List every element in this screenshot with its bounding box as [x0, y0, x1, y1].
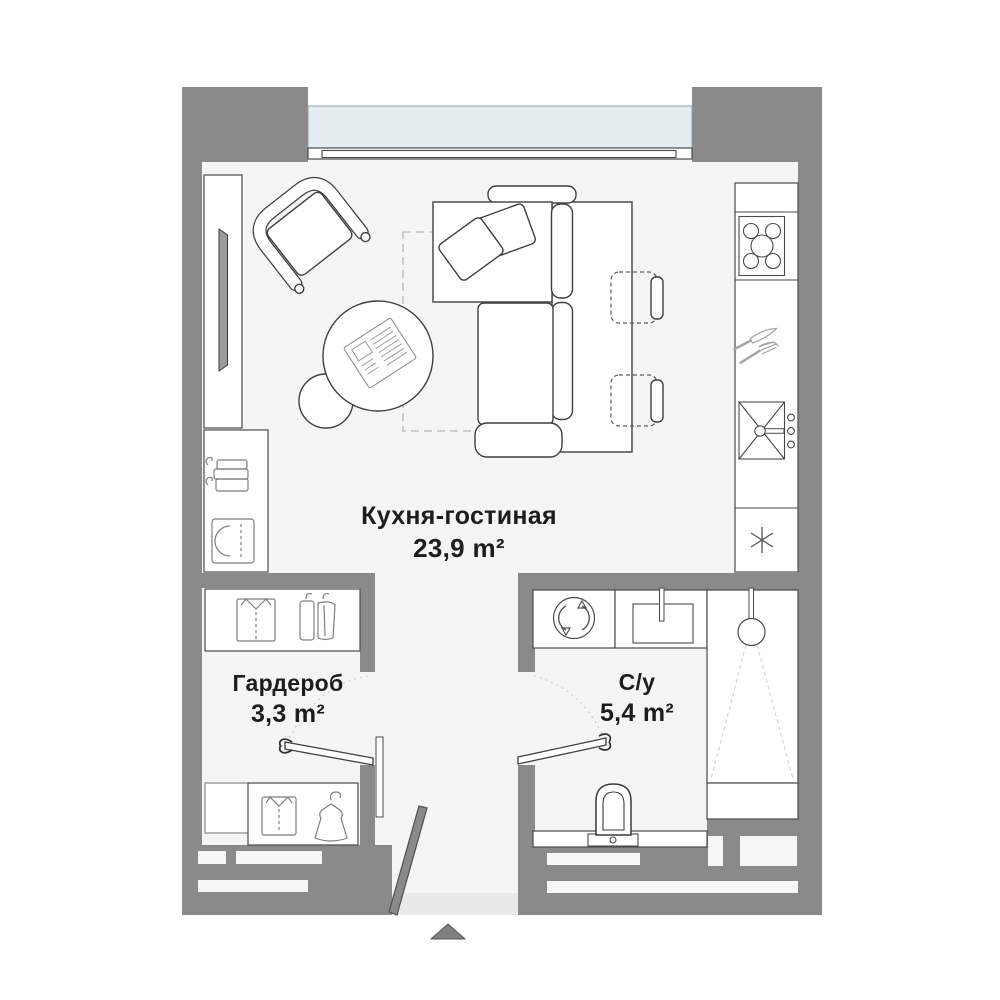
sofa-footrest — [475, 423, 562, 457]
room-area-wardrobe: 3,3 m² — [251, 700, 325, 728]
storage-cabinet — [204, 430, 268, 572]
wall-inset — [547, 853, 640, 865]
washing-machine-icon — [554, 598, 595, 639]
wall-segment — [692, 87, 822, 162]
wall-inset — [198, 851, 226, 864]
wall-segment — [182, 162, 202, 845]
bathroom-sink — [615, 588, 707, 648]
coffee-table — [323, 301, 433, 411]
shower-icon — [738, 619, 765, 646]
sofa-backrest — [552, 204, 573, 298]
wall-segment — [375, 845, 392, 915]
kitchen-counter — [732, 183, 798, 572]
shower-step — [707, 783, 798, 819]
sofa-headrest — [488, 186, 576, 203]
wall-segment — [182, 87, 308, 162]
sofa-seat — [478, 303, 553, 425]
wall-segment — [360, 765, 375, 915]
room-label-wardrobe: Гардероб — [232, 670, 343, 696]
room-label-bathroom: С/у — [619, 669, 656, 695]
entrance-arrow-icon — [431, 924, 465, 939]
wall-inset — [740, 836, 797, 866]
floor-plan: Кухня-гостиная 23,9 m² Гардероб 3,3 m² С… — [0, 0, 1000, 1000]
wall-segment — [360, 573, 375, 672]
wall-segment — [518, 573, 798, 590]
tv-cabinet — [204, 175, 242, 428]
faucet-icon — [660, 588, 665, 621]
wall-segment — [798, 162, 822, 915]
sofa-backrest — [552, 303, 573, 420]
tv-icon — [219, 229, 228, 371]
shower — [707, 588, 798, 819]
wall-inset — [708, 836, 723, 866]
wall-inset — [198, 880, 308, 892]
floor-plan-svg: Кухня-гостиная 23,9 m² Гардероб 3,3 m² С… — [0, 0, 1000, 1000]
wall-inset — [547, 881, 798, 893]
entrance-threshold — [392, 893, 518, 915]
wall-segment — [202, 573, 375, 588]
room-label-kitchen-living: Кухня-гостиная — [361, 502, 557, 530]
room-area-kitchen-living: 23,9 m² — [413, 533, 505, 563]
window-glass — [308, 106, 692, 148]
door-jamb — [376, 737, 383, 817]
wardrobe-cabinet-top — [205, 589, 360, 651]
window — [308, 106, 692, 159]
wall-inset — [236, 851, 322, 864]
room-area-bathroom: 5,4 m² — [600, 699, 674, 727]
washing-machine — [533, 590, 615, 648]
